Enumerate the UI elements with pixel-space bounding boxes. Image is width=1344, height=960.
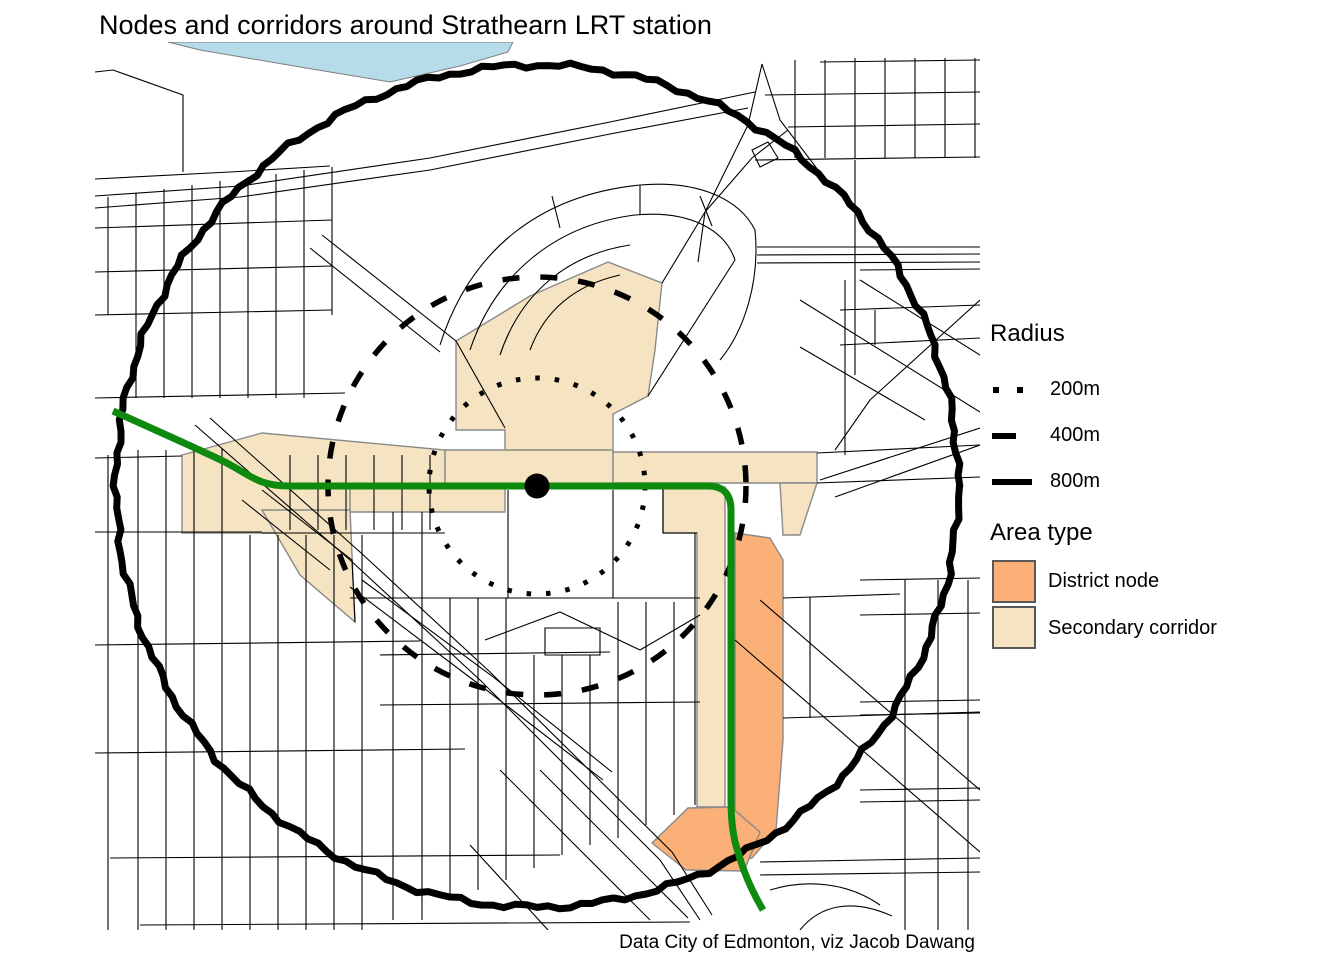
secondary-corridor-swatch	[992, 606, 1036, 649]
secondary-corridor-label: Secondary corridor	[1048, 617, 1217, 640]
legend-item-400m: 400m	[992, 424, 1100, 447]
area-type-legend-title: Area type	[990, 519, 1093, 547]
lrt-station-marker	[525, 474, 550, 499]
legend-item-200m: 200m	[992, 378, 1100, 401]
district-node-label: District node	[1048, 570, 1159, 593]
legend-label-800m: 800m	[1050, 470, 1100, 493]
dotted-line-sample-icon	[992, 383, 1032, 397]
secondary-corridor-area	[780, 483, 817, 535]
legend-label-400m: 400m	[1050, 424, 1100, 447]
legend-item-800m: 800m	[992, 470, 1100, 493]
secondary-corridor-area	[663, 487, 725, 807]
district-node-area	[735, 533, 783, 862]
district-node-swatch	[992, 560, 1036, 603]
solid-line-sample-icon	[992, 475, 1032, 489]
legend-label-200m: 200m	[1050, 378, 1100, 401]
secondary-corridor-area	[613, 452, 817, 483]
map-canvas	[0, 0, 1344, 960]
secondary-corridor-area	[456, 262, 662, 453]
map-layers	[95, 42, 980, 930]
map-figure: Nodes and corridors around Strathearn LR…	[0, 0, 1344, 960]
radius-legend-title: Radius	[990, 320, 1065, 348]
dashed-line-sample-icon	[992, 429, 1032, 443]
figure-title: Nodes and corridors around Strathearn LR…	[99, 10, 712, 41]
caption: Data City of Edmonton, viz Jacob Dawang	[619, 932, 975, 954]
